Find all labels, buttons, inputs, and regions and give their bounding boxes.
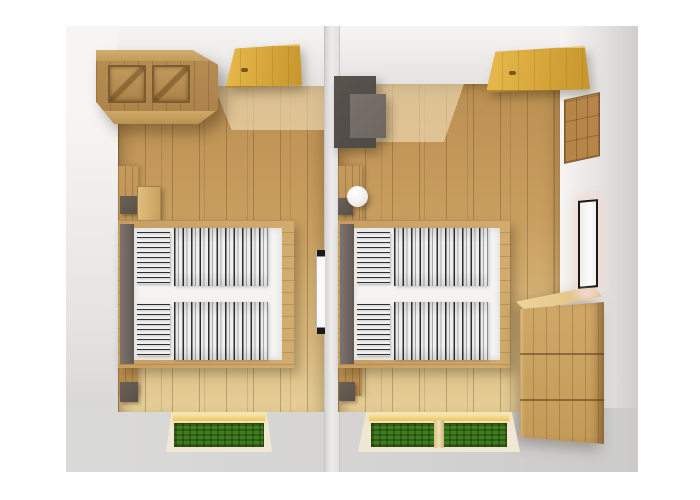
mirror-light-glow <box>572 286 602 302</box>
middle-wall-mirror <box>316 250 325 334</box>
wardrobe-door-right <box>152 65 190 103</box>
right-bed-mattress <box>354 228 500 360</box>
left-window <box>166 412 272 452</box>
left-bed-pillow-top <box>137 232 170 284</box>
wardrobe-body <box>96 50 218 124</box>
left-door-handle <box>241 68 248 72</box>
left-window-grass-view <box>174 423 263 447</box>
wardrobe-top-face <box>96 50 218 61</box>
left-bed-headboard <box>120 224 134 364</box>
wardrobe <box>96 50 218 124</box>
wood-wall-decor-panel <box>564 92 600 164</box>
left-bed-duvet-top <box>174 228 268 286</box>
drawer-divider <box>520 353 604 355</box>
right-door-handle <box>509 71 516 75</box>
left-bed-mattress <box>134 228 282 360</box>
left-floor-light-patch <box>214 86 324 130</box>
right-bed-headboard <box>340 224 354 364</box>
right-window-mullion <box>434 420 444 448</box>
left-bed-pillow-bottom <box>137 304 170 356</box>
right-room-door <box>486 46 590 94</box>
illuminated-wall-mirror <box>578 199 598 289</box>
left-nightstand <box>137 186 161 224</box>
left-door-leaf <box>224 44 302 90</box>
right-bed-pillow-bottom <box>357 304 390 356</box>
dresser-front-face <box>520 302 604 444</box>
floor-plan-render <box>0 0 700 500</box>
left-room-door <box>224 44 302 90</box>
ceiling-lamp <box>347 186 368 207</box>
right-wall-shelf-lower <box>339 382 355 401</box>
wardrobe-base-face <box>96 111 218 124</box>
right-bed-duvet-top <box>394 228 488 286</box>
right-bed <box>338 220 510 368</box>
left-wall-shelf-upper <box>120 196 137 214</box>
left-wall-shelf-lower <box>120 382 138 402</box>
gray-armchair <box>334 76 388 150</box>
chest-of-drawers <box>512 282 606 448</box>
left-bed-duvet-bottom <box>174 302 268 360</box>
right-bed-pillow-top <box>357 232 390 284</box>
left-window-frame-glow <box>173 415 264 421</box>
left-bed <box>118 220 294 368</box>
right-bed-duvet-bottom <box>394 302 488 360</box>
drawer-divider <box>520 399 604 401</box>
right-window <box>358 412 520 452</box>
right-door-leaf <box>486 46 590 94</box>
armchair-seat <box>350 94 386 138</box>
wardrobe-door-left <box>108 65 146 103</box>
